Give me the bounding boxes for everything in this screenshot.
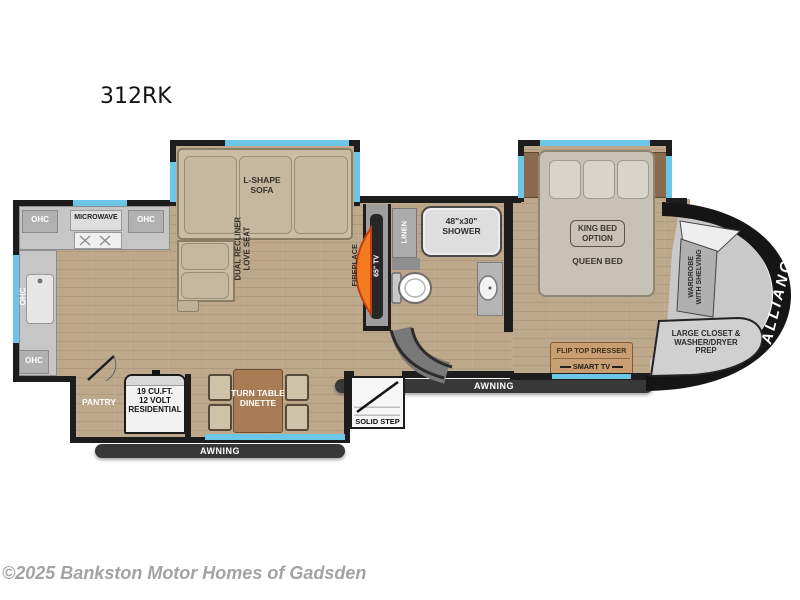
- floorplan-model-title: 312RK: [100, 84, 172, 109]
- ohc-side-label: OHC: [20, 280, 29, 312]
- floorplan-page: 312RK AWNING AWNING SOLID STEP: [0, 0, 800, 600]
- large-closet-label: LARGE CLOSET & WASHER/DRYER PREP: [663, 330, 749, 356]
- fridge-surround-wall: [185, 374, 191, 437]
- wall-bath-right: [504, 196, 513, 332]
- dinette-label: TURN TABLE DINETTE: [226, 389, 290, 408]
- queen-bed-label: QUEEN BED: [559, 257, 636, 267]
- nightstand-left: [522, 152, 539, 198]
- pillow: [549, 160, 581, 199]
- tv-wall-cap: [363, 326, 391, 331]
- awning-left-label: AWNING: [200, 446, 240, 456]
- range-cooktop: [74, 232, 122, 249]
- ohc-bottom-label: OHC: [19, 357, 49, 366]
- linen-step: [392, 258, 420, 270]
- solid-step-label: SOLID STEP: [352, 417, 403, 426]
- ohc-top-left-label: OHC: [22, 216, 58, 225]
- tv-label: 65" TV: [374, 249, 382, 282]
- wall-top-mid: [357, 196, 521, 203]
- window-dinette-bottom: [205, 434, 345, 440]
- window-bed-slide-left: [518, 156, 524, 198]
- sofa-armrest: [177, 300, 199, 312]
- bath-vanity: [477, 262, 503, 316]
- fridge-vent: [152, 370, 160, 376]
- kitchen-sink: [26, 274, 54, 324]
- wardrobe-label: WARDROBE WITH SHELVING: [688, 244, 704, 310]
- tv-wall-edge-right: [388, 204, 391, 330]
- window-bed-slide-right: [666, 156, 672, 198]
- loveseat-label: DUAL RECLINER LOVE SEAT: [234, 213, 251, 285]
- pillow: [617, 160, 649, 199]
- flip-top-dresser: FLIP TOP DRESSER SMART TV: [550, 342, 633, 376]
- awning-left-bar: AWNING: [95, 444, 345, 458]
- smart-tv-window-strip: [552, 374, 631, 379]
- smart-tv-label: SMART TV: [573, 362, 610, 371]
- linen-label: LINEN: [400, 219, 408, 246]
- window-sofa-slide-right: [354, 152, 360, 202]
- fireplace-label: FIREPLACE: [351, 240, 359, 290]
- microwave-label: MICROWAVE: [70, 214, 122, 222]
- king-bed-option-badge: KING BED OPTION: [570, 220, 625, 247]
- dealer-watermark: ©2025 Bankston Motor Homes of Gadsden: [2, 563, 366, 584]
- pantry-label: PANTRY: [74, 398, 124, 408]
- window-sofa-slide-top: [225, 140, 349, 146]
- sofa-label: L-SHAPE SOFA: [229, 176, 295, 195]
- window-kitchen-top: [73, 200, 127, 206]
- pillow: [583, 160, 615, 199]
- sofa-chaise: [177, 240, 235, 302]
- window-bed-slide-top: [540, 140, 650, 146]
- shower-label: 48"x30" SHOWER: [424, 217, 499, 236]
- wall-bottom-left: [13, 376, 76, 382]
- wall-pantry-left: [70, 376, 76, 443]
- wall-bottom-center: [402, 371, 514, 378]
- dinette-chair: [208, 404, 232, 431]
- solid-step: SOLID STEP: [350, 376, 405, 429]
- awning-right-label: AWNING: [474, 381, 514, 391]
- ohc-top-right-label: OHC: [128, 216, 164, 225]
- window-sofa-slide-left: [170, 162, 176, 202]
- dinette-chair: [285, 404, 309, 431]
- alliance-brand-label: ALLIANCE: [756, 233, 800, 358]
- flip-top-dresser-label: FLIP TOP DRESSER: [551, 346, 632, 355]
- fridge-label: 19 CU.FT. 12 VOLT RESIDENTIAL: [126, 388, 184, 415]
